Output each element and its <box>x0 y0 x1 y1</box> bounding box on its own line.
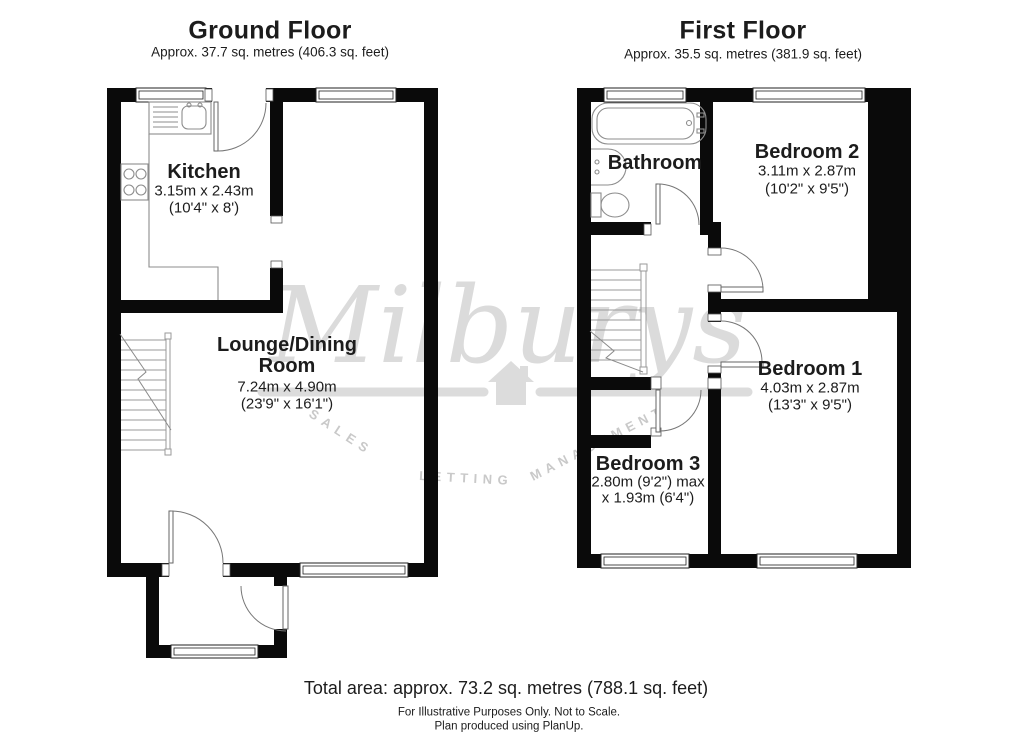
lounge-label-line1: Lounge/Dining <box>217 335 357 355</box>
bedroom-divider-wall <box>721 299 911 312</box>
lounge-top-window <box>316 88 396 102</box>
ground-floor-subtitle: Approx. 37.7 sq. metres (406.3 sq. feet) <box>151 45 389 59</box>
lounge-door-gap <box>169 563 223 577</box>
bedroom1-window <box>757 554 857 568</box>
bedroom3-label: Bedroom 3 <box>596 454 700 474</box>
gf-right-wall <box>424 88 438 577</box>
produced-by-note: Plan produced using PlanUp. <box>435 721 584 733</box>
bedroom2-label: Bedroom 2 <box>755 142 859 162</box>
first-floor-subtitle: Approx. 35.5 sq. metres (381.9 sq. feet) <box>624 47 862 61</box>
kitchen-dims-metric: 3.15m x 2.43m <box>154 184 253 199</box>
floorplan-drawing: Milburys SALES LETTING MANAGEMENT <box>0 0 1020 741</box>
lounge-dims-imperial: (23'9" x 16'1") <box>241 397 333 412</box>
bedroom1-left-wall <box>708 366 721 554</box>
kitchen-partition-stub <box>270 268 283 300</box>
landing-wall-upper-stub <box>708 222 721 248</box>
bedroom3-dims-line2: x 1.93m (6'4") <box>602 491 694 506</box>
bedroom3-dims-line1: 2.80m (9'2") max <box>591 475 704 490</box>
total-area-text: Total area: approx. 73.2 sq. metres (788… <box>304 679 708 697</box>
bedroom2-dims-metric: 3.11m x 2.87m <box>758 164 856 179</box>
bathroom-bottom-wall <box>591 222 651 235</box>
bathroom-label: Bathroom <box>608 153 702 173</box>
kitchen-label: Kitchen <box>167 162 240 182</box>
floorplan-page: Milburys SALES LETTING MANAGEMENT <box>0 0 1020 741</box>
porch-left-wall <box>146 563 159 658</box>
bedroom2-window <box>753 88 865 102</box>
bathroom-window <box>604 88 686 102</box>
bedroom3-window <box>601 554 689 568</box>
gf-left-wall <box>107 88 121 577</box>
bedroom1-dims-metric: 4.03m x 2.87m <box>760 381 859 396</box>
lounge-bottom-window <box>300 563 408 577</box>
porch-right-wall-top <box>274 568 287 586</box>
bedroom2-thick-wall <box>868 88 911 307</box>
porch-window <box>171 645 258 658</box>
kitchen-window <box>136 88 206 102</box>
back-door-gap <box>212 88 266 102</box>
lounge-dims-metric: 7.24m x 4.90m <box>237 380 336 395</box>
kitchen-bottom-wall <box>121 300 283 313</box>
cupboard-wall <box>591 435 651 448</box>
bedroom1-dims-imperial: (13'3" x 9'5") <box>768 398 852 413</box>
lounge-label-line2: Room <box>259 356 316 376</box>
first-floor-title: First Floor <box>680 19 807 44</box>
porch-fill <box>146 563 287 658</box>
bedroom1-label: Bedroom 1 <box>758 359 862 379</box>
porch-right-wall-bottom <box>274 629 287 658</box>
bedroom2-dims-imperial: (10'2" x 9'5") <box>765 182 849 197</box>
ground-floor-title: Ground Floor <box>188 19 351 44</box>
bedroom3-top-wall <box>591 377 651 390</box>
disclaimer-note: For Illustrative Purposes Only. Not to S… <box>398 707 620 719</box>
kitchen-dims-imperial: (10'4" x 8') <box>169 201 239 216</box>
kitchen-partition-wall <box>270 102 283 216</box>
ff-left-wall <box>577 88 591 568</box>
